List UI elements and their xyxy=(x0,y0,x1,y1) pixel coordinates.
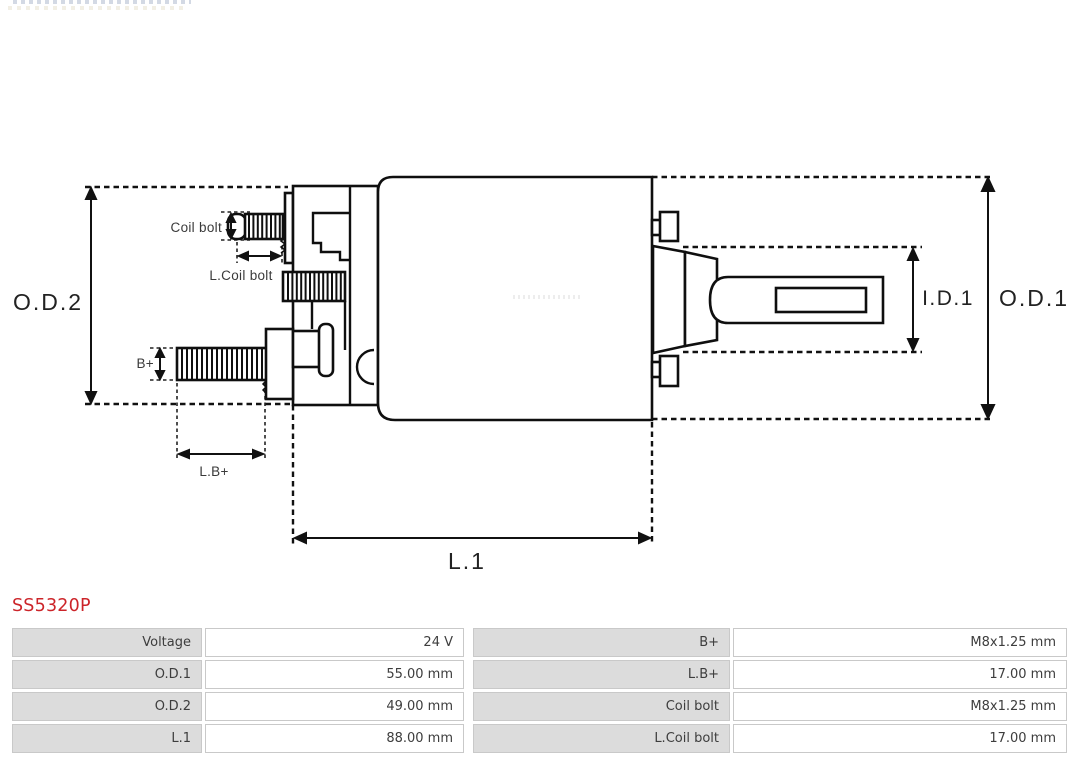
spec-label: L.1 xyxy=(12,724,202,753)
part-number: SS5320P xyxy=(12,596,91,616)
spec-value: M8x1.25 mm xyxy=(733,692,1067,721)
table-row: O.D.1 55.00 mm xyxy=(12,660,464,689)
plunger-cone-step1 xyxy=(653,246,685,353)
spec-label: L.Coil bolt xyxy=(473,724,730,753)
spec-value: 24 V xyxy=(205,628,464,657)
small-extension-dashed-lines xyxy=(150,212,282,460)
spec-table-left: Voltage 24 V O.D.1 55.00 mm O.D.2 49.00 … xyxy=(9,625,467,756)
dim-label-b-plus: B+ xyxy=(137,356,155,371)
table-row: O.D.2 49.00 mm xyxy=(12,692,464,721)
table-row: Coil bolt M8x1.25 mm xyxy=(473,692,1067,721)
b-plus-washer xyxy=(319,324,333,376)
spec-label: Voltage xyxy=(12,628,202,657)
spec-value: 55.00 mm xyxy=(205,660,464,689)
table-row: L.B+ 17.00 mm xyxy=(473,660,1067,689)
dim-label-l-coil-bolt: L.Coil bolt xyxy=(209,268,272,283)
spec-label: O.D.2 xyxy=(12,692,202,721)
dim-label-l-b-plus: L.B+ xyxy=(199,464,228,479)
dim-label-l1: L.1 xyxy=(448,548,486,574)
spec-label: L.B+ xyxy=(473,660,730,689)
spec-label: O.D.1 xyxy=(12,660,202,689)
table-row: Voltage 24 V xyxy=(12,628,464,657)
spec-label: Coil bolt xyxy=(473,692,730,721)
solenoid-diagram-svg: O.D.2 O.D.1 I.D.1 L.1 Coil bolt L.Coil b… xyxy=(0,0,1080,595)
spec-value: 49.00 mm xyxy=(205,692,464,721)
spec-tables: Voltage 24 V O.D.1 55.00 mm O.D.2 49.00 … xyxy=(9,625,1070,756)
table-row: L.Coil bolt 17.00 mm xyxy=(473,724,1067,753)
dim-label-coil-bolt: Coil bolt xyxy=(171,220,222,235)
spec-table-right: B+ M8x1.25 mm L.B+ 17.00 mm Coil bolt M8… xyxy=(470,625,1070,756)
b-plus-nut xyxy=(266,329,293,399)
spec-value: 17.00 mm xyxy=(733,724,1067,753)
table-row: L.1 88.00 mm xyxy=(12,724,464,753)
spec-label: B+ xyxy=(473,628,730,657)
dim-label-od1: O.D.1 xyxy=(999,285,1069,311)
table-row: B+ M8x1.25 mm xyxy=(473,628,1067,657)
dim-label-id1: I.D.1 xyxy=(922,287,974,310)
spec-value: M8x1.25 mm xyxy=(733,628,1067,657)
solenoid-technical-drawing: O.D.2 O.D.1 I.D.1 L.1 Coil bolt L.Coil b… xyxy=(0,0,1080,595)
spec-value: 17.00 mm xyxy=(733,660,1067,689)
spec-value: 88.00 mm xyxy=(205,724,464,753)
coil-bolt-threads xyxy=(245,214,283,239)
b-plus-sleeve xyxy=(293,331,322,367)
plunger-shaft xyxy=(710,277,883,323)
dim-label-od2: O.D.2 xyxy=(13,289,83,315)
